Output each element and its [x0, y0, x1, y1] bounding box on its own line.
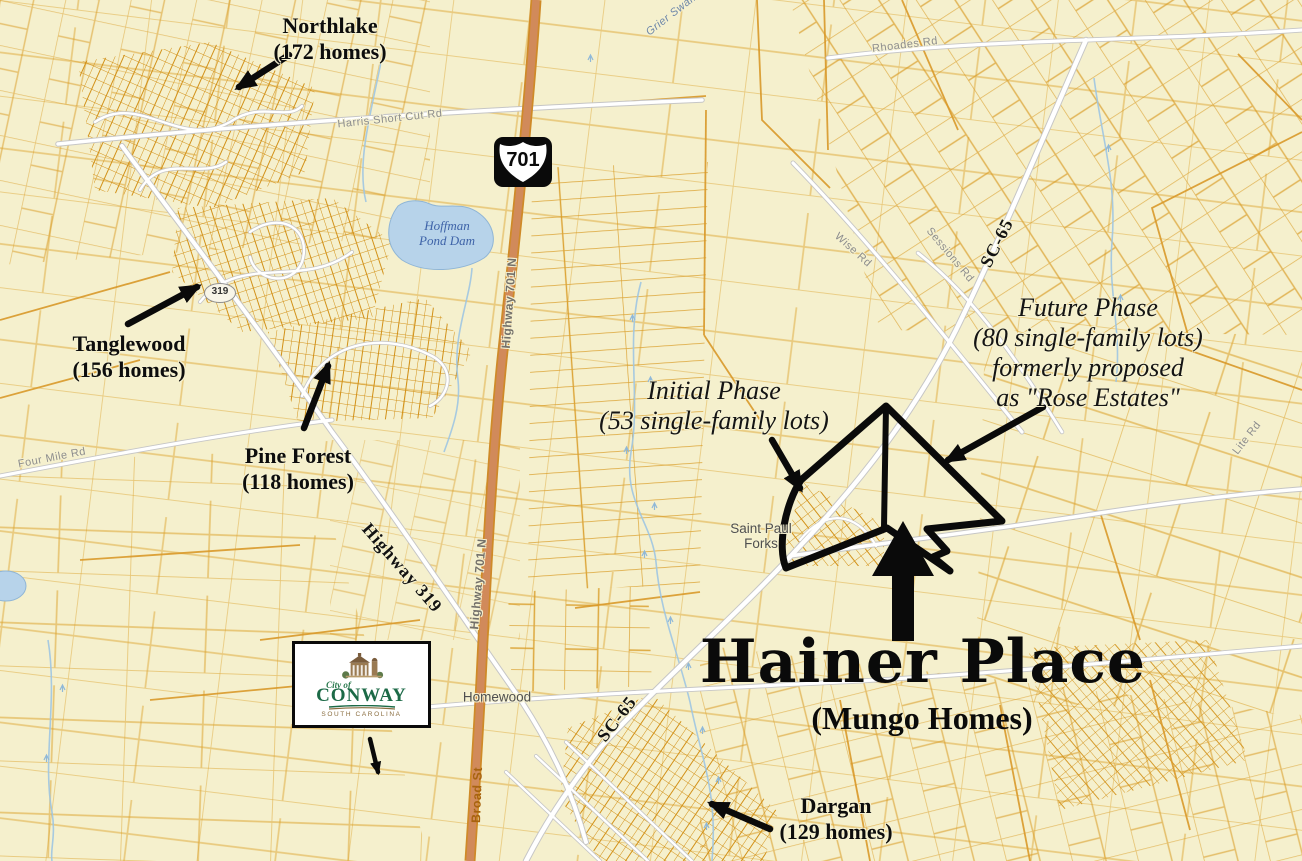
pine-forest-homes: (118 homes): [242, 469, 354, 495]
hoffman-pond-dam-label: Hoffman Pond Dam: [419, 218, 475, 248]
initial-phase-line2: (53 single-family lots): [599, 406, 829, 436]
sc-319-shield: 319: [204, 283, 236, 303]
future-phase-line4: as "Rose Estates": [973, 383, 1203, 413]
tanglewood-name: Tanglewood: [72, 331, 185, 357]
initial-phase-line1: Initial Phase: [599, 376, 829, 406]
hoffman-line1: Hoffman: [419, 218, 475, 233]
us-701-shield-number: 701: [494, 149, 552, 172]
map: Harris Short Cut Rd Rhoades Rd Wise Rd S…: [0, 0, 1302, 861]
conway-logo: City of CONWAY SOUTH CAROLINA: [292, 641, 431, 728]
pine-forest-callout: Pine Forest (118 homes): [242, 443, 354, 495]
conway-swoosh-icon: [327, 705, 397, 710]
initial-phase-note: Initial Phase (53 single-family lots): [599, 376, 829, 436]
conway-name: CONWAY: [316, 687, 407, 705]
tanglewood-homes: (156 homes): [72, 357, 185, 383]
northlake-callout: Northlake (172 homes): [273, 13, 386, 65]
homewood-label: Homewood: [463, 690, 531, 705]
future-phase-line2: (80 single-family lots): [973, 323, 1203, 353]
future-phase-note: Future Phase (80 single-family lots) for…: [973, 293, 1203, 413]
saint-paul-line1: Saint Paul: [730, 521, 792, 536]
us-701-shield: 701: [494, 137, 552, 187]
hainer-place-title: Hainer Place: [700, 632, 1146, 692]
dargan-name: Dargan: [779, 793, 892, 819]
hoffman-line2: Pond Dam: [419, 233, 475, 248]
saint-paul-forks-label: Saint Paul Forks: [730, 521, 792, 551]
hainer-place-subtitle: (Mungo Homes): [811, 700, 1032, 737]
conway-state: SOUTH CAROLINA: [321, 711, 401, 718]
future-phase-line1: Future Phase: [973, 293, 1203, 323]
dargan-callout: Dargan (129 homes): [779, 793, 892, 845]
conway-building-icon: [336, 651, 388, 681]
tanglewood-callout: Tanglewood (156 homes): [72, 331, 185, 383]
northlake-homes: (172 homes): [273, 39, 386, 65]
pine-forest-name: Pine Forest: [242, 443, 354, 469]
dargan-homes: (129 homes): [779, 819, 892, 845]
northlake-name: Northlake: [273, 13, 386, 39]
broad-st-label: Broad St: [469, 767, 485, 824]
saint-paul-line2: Forks: [730, 536, 792, 551]
future-phase-line3: formerly proposed: [973, 353, 1203, 383]
